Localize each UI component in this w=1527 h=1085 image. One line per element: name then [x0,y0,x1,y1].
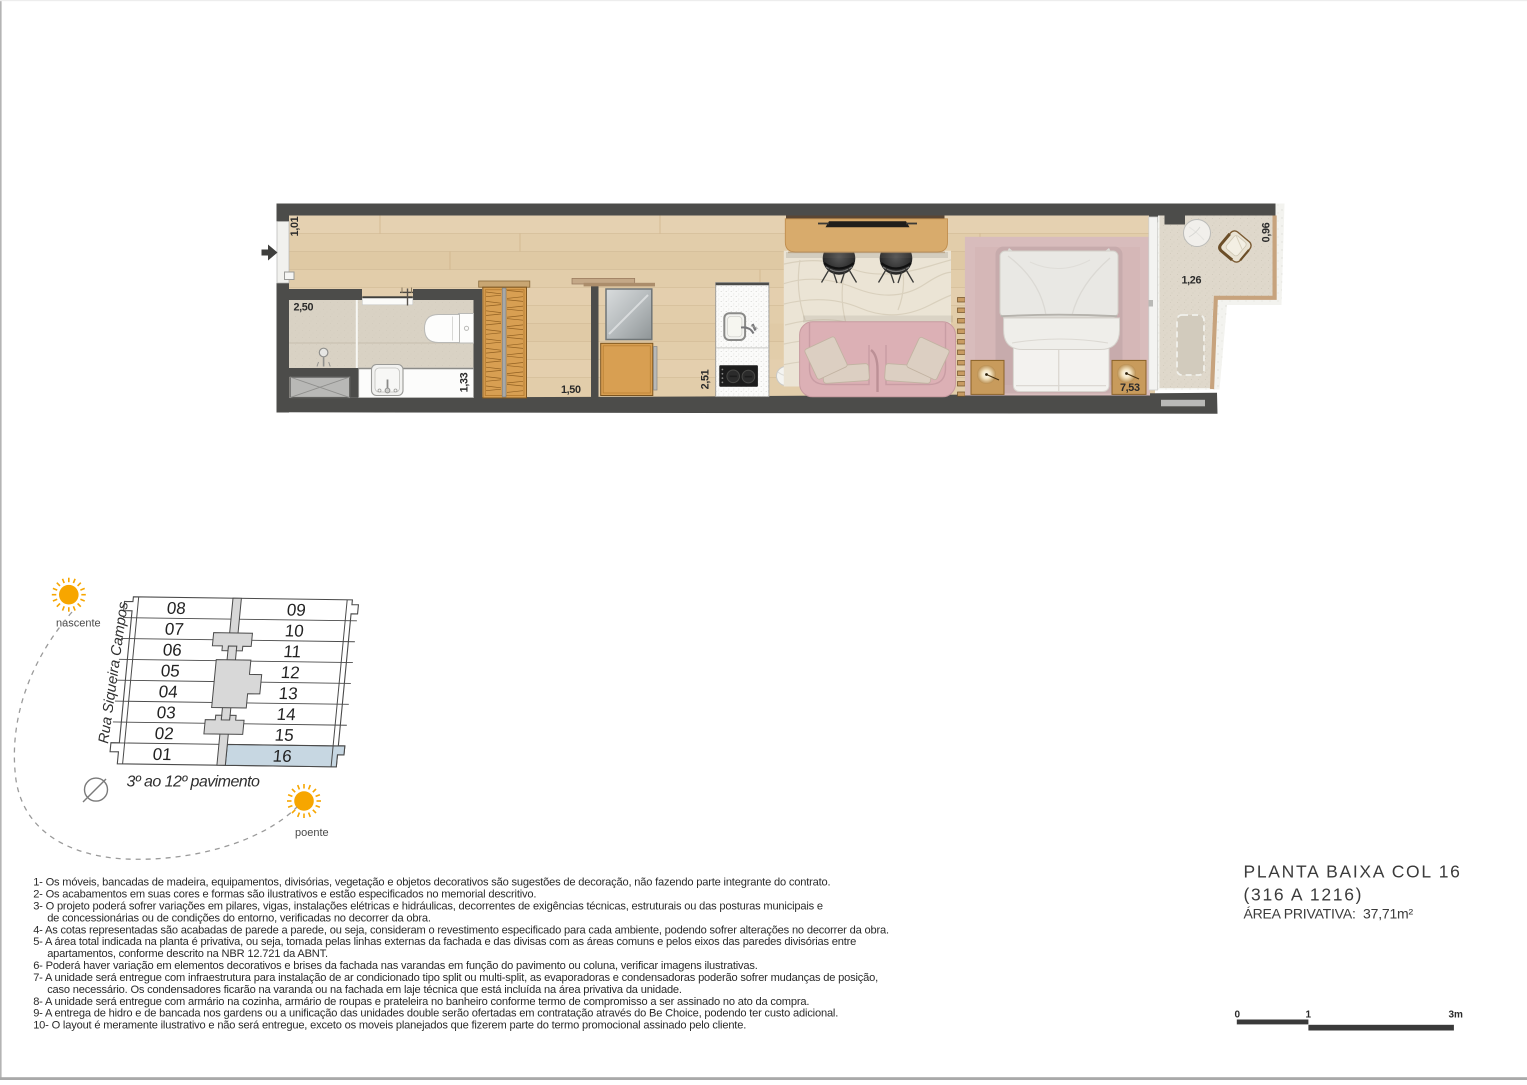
svg-text:2,51: 2,51 [700,369,712,389]
svg-text:0,96: 0,96 [1260,222,1272,242]
svg-text:01: 01 [152,745,173,764]
svg-text:3m: 3m [1449,1010,1464,1021]
svg-text:13: 13 [278,684,299,703]
svg-text:5- A área total indicada na pl: 5- A área total indicada na planta é pri… [33,936,856,948]
svg-text:10- O layout é meramente ilust: 10- O layout é meramente ilustrativo e n… [33,1020,746,1032]
svg-text:7- A unidade será entregue com: 7- A unidade será entregue com infraestr… [33,972,878,984]
svg-text:03: 03 [156,703,177,722]
svg-text:1- Os móveis, bancadas de made: 1- Os móveis, bancadas de madeira, equip… [33,877,830,889]
svg-text:1,26: 1,26 [1182,275,1202,287]
svg-text:9- A entrega de hidro e de ban: 9- A entrega de hidro e de bancada nos g… [33,1008,838,1020]
svg-text:09: 09 [286,600,307,619]
svg-text:8- A unidade será entregue com: 8- A unidade será entregue com armário n… [33,996,809,1008]
svg-text:06: 06 [162,641,183,660]
svg-text:4- As cotas representadas são: 4- As cotas representadas são acabadas d… [33,924,889,936]
svg-text:16: 16 [272,747,293,766]
svg-text:04: 04 [158,682,179,701]
svg-text:2- Os acabamentos em suas core: 2- Os acabamentos em suas cores e formas… [33,889,536,901]
svg-text:1,33: 1,33 [458,372,470,392]
svg-text:3º ao 12º pavimento: 3º ao 12º pavimento [127,774,261,791]
svg-text:apartamentos, conforme descrit: apartamentos, conforme descrito na NBR 1… [47,948,328,960]
svg-text:ÁREA PRIVATIVA: 37,71m²: ÁREA PRIVATIVA: 37,71m² [1244,905,1414,921]
svg-text:0: 0 [1235,1010,1241,1021]
svg-text:6- Poderá haver variação em el: 6- Poderá haver variação em elementos de… [33,960,758,972]
svg-text:1,01: 1,01 [289,216,301,236]
svg-text:poente: poente [295,827,329,839]
svg-text:2,50: 2,50 [294,302,314,314]
svg-text:12: 12 [280,663,301,682]
svg-text:05: 05 [160,661,181,680]
svg-text:3- O projeto poderá sofrer var: 3- O projeto poderá sofrer variações em … [33,900,823,912]
svg-text:02: 02 [154,724,175,743]
svg-text:caso necessário. Os condensado: caso necessário. Os condensadores ficarã… [47,984,682,996]
svg-text:7,53: 7,53 [1120,382,1140,394]
svg-text:PLANTA BAIXA COL 16: PLANTA BAIXA COL 16 [1244,862,1462,882]
svg-text:10: 10 [284,621,305,640]
svg-text:07: 07 [164,620,185,639]
svg-text:1: 1 [1306,1010,1312,1021]
svg-text:08: 08 [166,599,187,618]
svg-text:15: 15 [274,726,295,745]
svg-text:de concessionárias ou de condi: de concessionárias ou de condições do en… [47,912,431,924]
svg-text:14: 14 [276,705,297,724]
svg-text:(316 A 1216): (316 A 1216) [1244,885,1364,905]
svg-text:11: 11 [283,642,302,661]
svg-text:1,50: 1,50 [561,384,581,396]
